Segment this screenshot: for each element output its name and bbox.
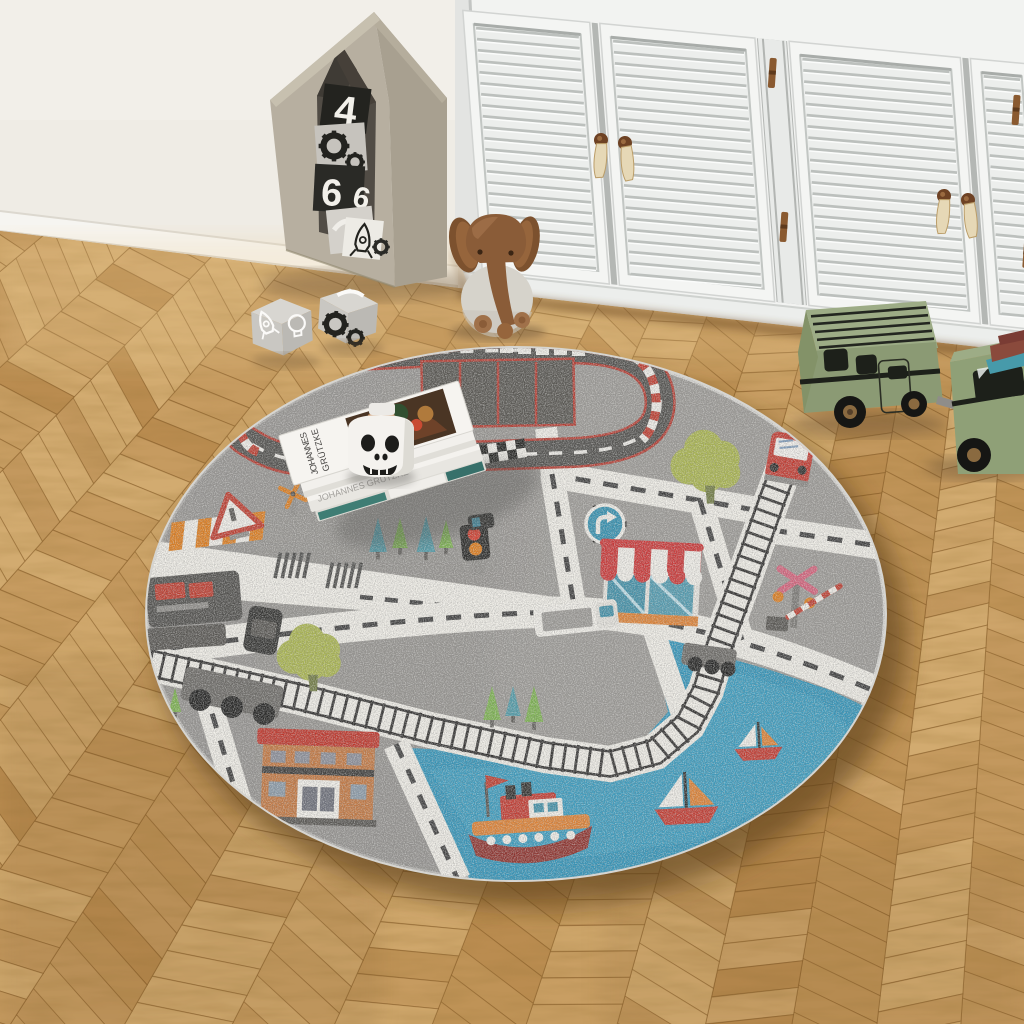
svg-text:6: 6 xyxy=(320,172,343,215)
